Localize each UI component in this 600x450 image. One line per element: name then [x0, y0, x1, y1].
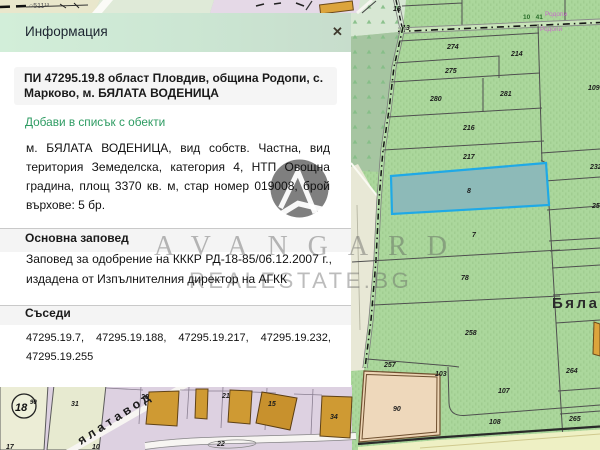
svg-text:○511¹³: ○511¹³: [29, 3, 50, 10]
svg-text:214: 214: [510, 51, 523, 58]
svg-text:258: 258: [464, 330, 477, 337]
svg-text:108: 108: [489, 419, 501, 426]
svg-text:264: 264: [565, 368, 578, 375]
svg-text:78: 78: [461, 275, 469, 282]
svg-text:31: 31: [71, 401, 79, 408]
svg-text:109: 109: [588, 85, 600, 92]
svg-text:17: 17: [6, 444, 15, 450]
svg-text:216: 216: [462, 125, 475, 132]
svg-text:281: 281: [499, 91, 512, 98]
svg-text:257: 257: [383, 362, 397, 369]
svg-text:90: 90: [393, 406, 401, 413]
svg-text:107: 107: [498, 388, 511, 395]
svg-text:22: 22: [216, 441, 225, 448]
svg-text:15: 15: [268, 401, 276, 408]
svg-text:103: 103: [435, 371, 447, 378]
svg-text:90: 90: [30, 400, 37, 406]
svg-text:18: 18: [393, 6, 401, 13]
svg-text:280: 280: [429, 96, 442, 103]
svg-text:232: 232: [589, 164, 600, 171]
svg-text:Родопи: Родопи: [545, 11, 567, 18]
svg-text:10: 10: [92, 444, 100, 450]
svg-text:20: 20: [140, 394, 149, 401]
svg-text:34: 34: [330, 414, 338, 421]
svg-text:217: 217: [462, 154, 476, 161]
svg-text:25: 25: [591, 203, 600, 210]
svg-text:18: 18: [15, 402, 28, 414]
svg-text:8: 8: [467, 188, 471, 195]
svg-text:Родопи: Родопи: [540, 26, 562, 33]
svg-text:Бяла: Бяла: [552, 295, 599, 312]
svg-text:265: 265: [568, 416, 581, 423]
svg-text:274: 274: [446, 44, 459, 51]
svg-text:21: 21: [221, 393, 230, 400]
svg-text:10 41: 10 41: [523, 14, 543, 21]
svg-text:275: 275: [444, 68, 457, 75]
